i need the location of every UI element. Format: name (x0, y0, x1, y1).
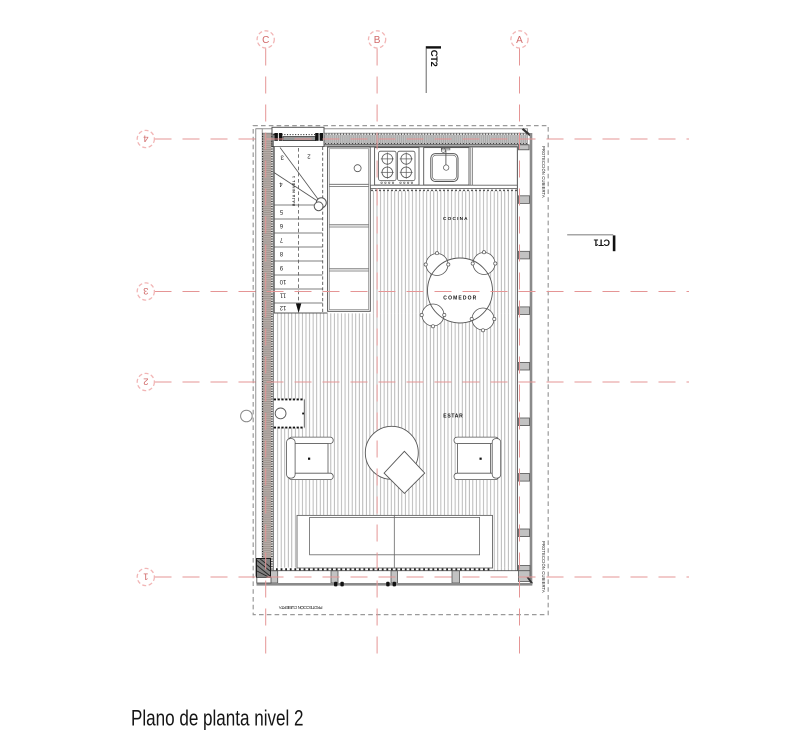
svg-text:12: 12 (279, 304, 286, 310)
svg-text:11: 11 (279, 292, 286, 298)
svg-text:1: 1 (143, 570, 148, 581)
svg-text:CT1: CT1 (594, 237, 611, 247)
svg-text:2: 2 (143, 375, 148, 386)
svg-text:4: 4 (143, 132, 148, 143)
svg-text:PROTECCIÓN CUBIERTA: PROTECCIÓN CUBIERTA (541, 146, 546, 198)
svg-text:B: B (374, 35, 381, 46)
svg-text:Plano de planta nivel 2: Plano de planta nivel 2 (131, 706, 304, 731)
svg-text:A: A (516, 35, 523, 46)
svg-text:10: 10 (279, 278, 286, 284)
svg-text:COCINA: COCINA (443, 216, 468, 221)
svg-text:ESTAR: ESTAR (443, 413, 463, 419)
svg-text:BAJA NIVEL 1: BAJA NIVEL 1 (292, 176, 296, 206)
svg-text:3: 3 (143, 285, 148, 296)
svg-text:CT2: CT2 (428, 50, 439, 67)
svg-text:C: C (262, 35, 269, 46)
svg-text:PROTECCIÓN CUBIERTA: PROTECCIÓN CUBIERTA (541, 541, 546, 593)
svg-text:PROTECCIÓN CUBIERTA: PROTECCIÓN CUBIERTA (279, 605, 323, 610)
